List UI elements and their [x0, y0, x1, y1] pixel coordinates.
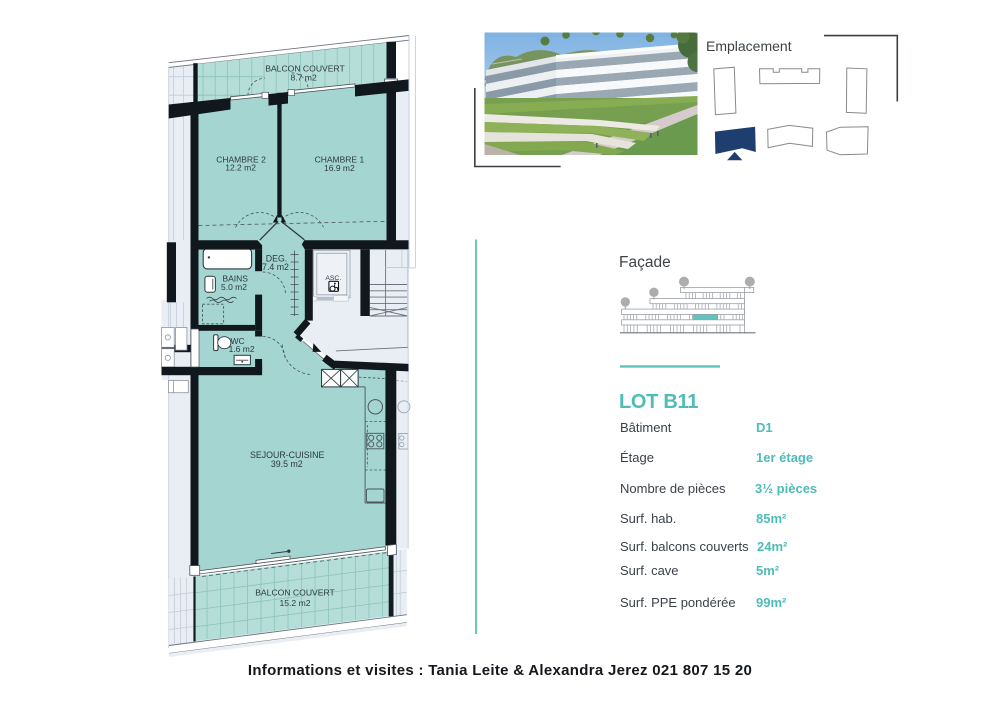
svg-text:8.7 m2: 8.7 m2: [290, 72, 316, 82]
svg-text:BALCON COUVERT: BALCON COUVERT: [255, 588, 335, 598]
svg-text:12.2 m2: 12.2 m2: [225, 163, 256, 173]
svg-text:39.5 m2: 39.5 m2: [271, 459, 303, 469]
svg-text:7.4 m2: 7.4 m2: [262, 262, 289, 272]
svg-text:5.0 m2: 5.0 m2: [221, 282, 247, 292]
svg-text:16.9 m2: 16.9 m2: [324, 163, 355, 173]
svg-text:1.6 m2: 1.6 m2: [229, 344, 255, 354]
svg-text:15.2 m2: 15.2 m2: [279, 598, 310, 608]
